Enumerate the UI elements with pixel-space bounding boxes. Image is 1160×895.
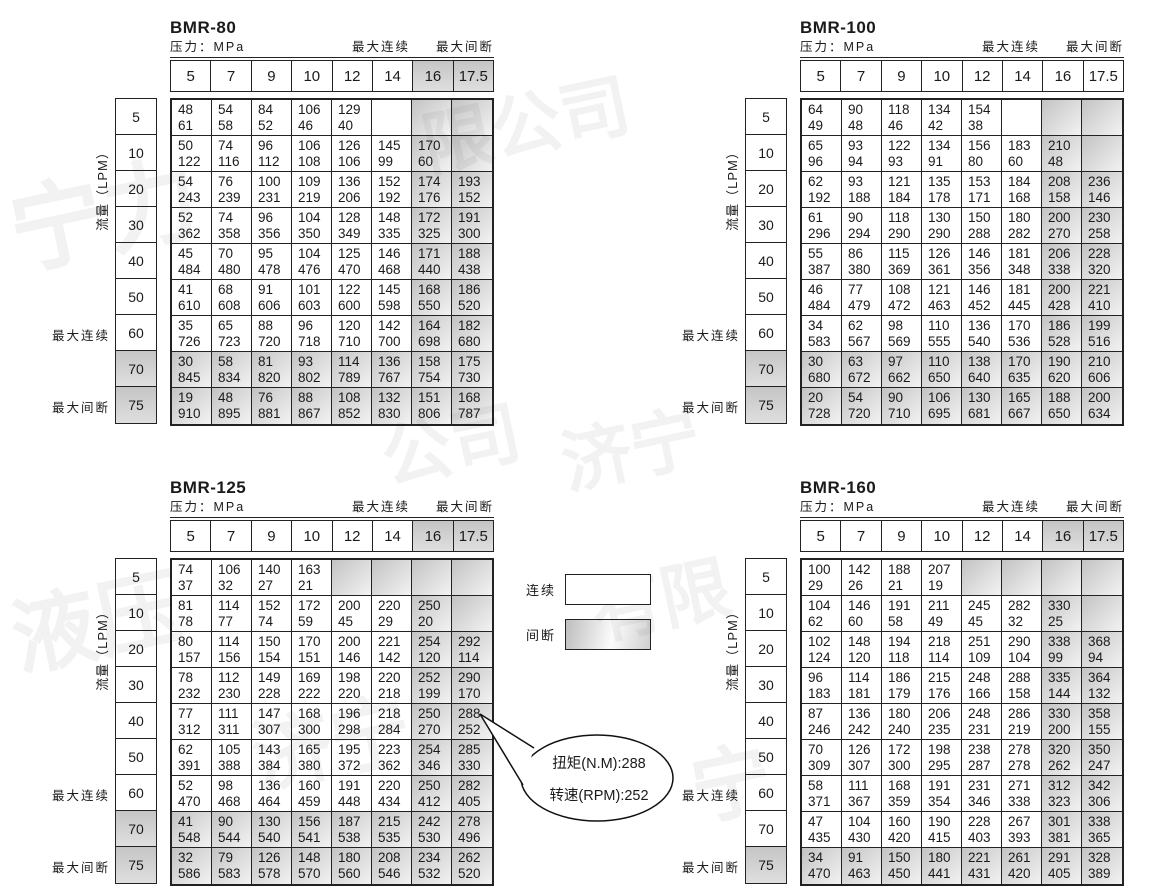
speed-value: 346 (418, 758, 451, 774)
data-cell: 136464 (252, 776, 292, 812)
data-cell (452, 136, 492, 172)
table-title: BMR-80 (170, 18, 236, 38)
data-cell: 182680 (452, 316, 492, 352)
data-cell: 76881 (252, 388, 292, 424)
speed-value: 60 (418, 154, 451, 170)
data-cell: 200270 (1042, 208, 1082, 244)
max-intermittent-row-label: 最大间断 (30, 397, 110, 416)
torque-value: 35 (178, 318, 211, 334)
data-cell: 151806 (412, 388, 452, 424)
data-cell: 130681 (962, 388, 1002, 424)
torque-value: 48 (178, 102, 211, 118)
data-cell: 98468 (212, 776, 252, 812)
data-cell: 102124 (802, 632, 842, 668)
speed-value: 371 (808, 794, 841, 810)
speed-value: 459 (298, 794, 331, 810)
speed-value: 307 (848, 758, 881, 774)
data-cell: 24545 (962, 596, 1002, 632)
speed-value: 472 (888, 298, 921, 314)
flow-axis-label: 流量（LPM） (722, 108, 738, 268)
speed-value: 806 (418, 406, 451, 422)
speed-value: 532 (418, 866, 451, 882)
speed-value: 192 (808, 190, 841, 206)
flow-header-cell: 50 (746, 279, 786, 315)
pressure-header-cell: 17.5 (1084, 521, 1123, 551)
speed-value: 49 (808, 118, 841, 134)
torque-value: 199 (1088, 318, 1122, 334)
flow-header-cell: 75 (116, 387, 156, 423)
header-label-row: 压力：MPa 最大连续 最大间断 (800, 500, 1124, 518)
speed-value: 296 (808, 226, 841, 242)
data-cell: 106695 (922, 388, 962, 424)
data-cell: 215176 (922, 668, 962, 704)
torque-value: 62 (808, 174, 841, 190)
speed-value: 80 (968, 154, 1001, 170)
torque-value: 98 (218, 778, 251, 794)
pressure-unit-label: 压力：MPa (170, 496, 245, 515)
torque-value: 220 (378, 670, 411, 686)
data-cell: 19158 (882, 596, 922, 632)
pressure-header-row: 5791012141617.5 (800, 60, 1124, 92)
data-cell (1082, 100, 1122, 136)
data-cell: 34470 (802, 848, 842, 884)
speed-value: 19 (928, 578, 961, 594)
data-cell: 33025 (1042, 596, 1082, 632)
data-cell: 122600 (332, 280, 372, 316)
table-bmr-125: 流量（LPM） 最大连续 最大间断 51020304050607075 BMR-… (30, 478, 494, 882)
torque-value: 136 (378, 354, 411, 370)
speed-value: 479 (848, 298, 881, 314)
torque-value: 134 (928, 138, 961, 154)
speed-value: 569 (888, 334, 921, 350)
speed-value: 246 (808, 722, 841, 738)
torque-value: 122 (888, 138, 921, 154)
speed-value: 867 (298, 406, 331, 422)
torque-value: 234 (418, 850, 451, 866)
flow-header-cell: 60 (116, 775, 156, 811)
data-cell: 68608 (212, 280, 252, 316)
torque-value: 125 (338, 246, 371, 262)
speed-value: 184 (888, 190, 921, 206)
torque-value: 45 (178, 246, 211, 262)
data-cell: 16321 (292, 560, 332, 596)
speed-value: 52 (258, 118, 291, 134)
speed-value: 335 (378, 226, 411, 242)
speed-value: 428 (1048, 298, 1081, 314)
data-cell (1082, 136, 1122, 172)
torque-value: 104 (298, 246, 331, 262)
data-cell: 52362 (172, 208, 212, 244)
speed-value: 228 (258, 686, 291, 702)
speed-value: 767 (378, 370, 411, 386)
speed-value: 49 (928, 614, 961, 630)
data-cell: 278278 (1002, 740, 1042, 776)
data-cell: 114789 (332, 352, 372, 388)
pressure-header-cell: 14 (373, 61, 413, 91)
speed-value: 496 (458, 830, 492, 846)
data-cell: 46484 (802, 280, 842, 316)
flow-header-cell: 70 (116, 351, 156, 387)
speed-value: 146 (1088, 190, 1122, 206)
data-cell: 136242 (842, 704, 882, 740)
pressure-header-cell: 5 (171, 61, 211, 91)
speed-value: 29 (378, 614, 411, 630)
torque-value: 290 (1008, 634, 1041, 650)
torque-value: 250 (418, 706, 451, 722)
speed-value: 391 (178, 758, 211, 774)
data-cell: 148335 (372, 208, 412, 244)
speed-value: 372 (338, 758, 371, 774)
torque-value: 68 (218, 282, 251, 298)
speed-value: 723 (218, 334, 251, 350)
torque-value: 278 (1008, 742, 1041, 758)
speed-value: 104 (1008, 650, 1041, 666)
speed-value: 325 (418, 226, 451, 242)
data-cell: 194118 (882, 632, 922, 668)
data-cell: 114181 (842, 668, 882, 704)
speed-value: 40 (338, 118, 371, 134)
flow-header-cell: 5 (116, 99, 156, 135)
speed-value: 361 (928, 262, 961, 278)
torque-value: 126 (848, 742, 881, 758)
data-cell: 250270 (412, 704, 452, 740)
data-cell: 136206 (332, 172, 372, 208)
data-cell: 143384 (252, 740, 292, 776)
torque-value: 221 (968, 850, 1001, 866)
data-cell: 254120 (412, 632, 452, 668)
speed-value: 710 (338, 334, 371, 350)
torque-value: 146 (848, 598, 881, 614)
data-cell: 10632 (212, 560, 252, 596)
flow-axis-label: 流量（LPM） (92, 108, 108, 268)
torque-value: 218 (928, 634, 961, 650)
data-cell: 191448 (332, 776, 372, 812)
speed-value: 188 (848, 190, 881, 206)
speed-value: 60 (1008, 154, 1041, 170)
speed-value: 287 (968, 758, 1001, 774)
speed-value: 154 (258, 650, 291, 666)
data-cell: 130540 (252, 812, 292, 848)
torque-value: 182 (458, 318, 492, 334)
data-cell: 54243 (172, 172, 212, 208)
speed-value: 650 (1048, 406, 1081, 422)
speed-value: 452 (968, 298, 1001, 314)
flow-column: 51020304050607075 (745, 558, 787, 884)
torque-value: 168 (418, 282, 451, 298)
pressure-header-cell: 16 (413, 61, 453, 91)
speed-value: 662 (888, 370, 921, 386)
speed-value: 156 (218, 650, 251, 666)
speed-value: 312 (178, 722, 211, 738)
speed-value: 48 (848, 118, 881, 134)
data-cell: 330200 (1042, 704, 1082, 740)
speed-value: 231 (258, 190, 291, 206)
max-continuous-row-label: 最大连续 (30, 325, 110, 344)
torque-value: 70 (808, 742, 841, 758)
speed-value: 288 (968, 226, 1001, 242)
pressure-header-cell: 14 (1003, 61, 1043, 91)
speed-value: 468 (218, 794, 251, 810)
pressure-header-cell: 5 (801, 521, 841, 551)
pressure-header-cell: 7 (841, 521, 881, 551)
torque-value: 64 (808, 102, 841, 118)
torque-value: 186 (1048, 318, 1081, 334)
data-cell: 186179 (882, 668, 922, 704)
torque-value: 142 (378, 318, 411, 334)
torque-value: 114 (218, 634, 251, 650)
torque-value: 41 (178, 282, 211, 298)
torque-value: 146 (378, 246, 411, 262)
data-cell: 112230 (212, 668, 252, 704)
speed-value: 672 (848, 370, 881, 386)
torque-value: 148 (298, 850, 331, 866)
flow-header-cell: 75 (746, 387, 786, 423)
torque-value: 170 (1008, 354, 1041, 370)
torque-value: 187 (338, 814, 371, 830)
speed-value: 309 (808, 758, 841, 774)
data-cell: 195372 (332, 740, 372, 776)
torque-value: 54 (848, 390, 881, 406)
data-cell: 79583 (212, 848, 252, 884)
speed-value: 548 (178, 830, 211, 846)
speed-value: 550 (418, 298, 451, 314)
speed-value: 538 (338, 830, 371, 846)
max-continuous-col-label: 最大连续 (352, 496, 410, 515)
speed-value: 640 (968, 370, 1001, 386)
header-label-row: 压力：MPa 最大连续 最大间断 (170, 500, 494, 518)
flow-header-cell: 30 (116, 667, 156, 703)
torque-value: 151 (418, 390, 451, 406)
speed-value: 412 (418, 794, 451, 810)
torque-value: 55 (808, 246, 841, 262)
data-cell: 125470 (332, 244, 372, 280)
torque-value: 158 (418, 354, 451, 370)
torque-value: 251 (968, 634, 1001, 650)
data-cell: 320262 (1042, 740, 1082, 776)
pressure-header-cell: 16 (1043, 521, 1083, 551)
pressure-header-cell: 10 (292, 61, 332, 91)
speed-value: 42 (928, 118, 961, 134)
torque-value: 74 (218, 210, 251, 226)
speed-value: 393 (1008, 830, 1041, 846)
speed-value: 586 (178, 866, 211, 882)
speed-value: 112 (258, 154, 291, 170)
data-cell: 186520 (452, 280, 492, 316)
torque-value: 114 (218, 598, 251, 614)
data-cell: 18821 (882, 560, 922, 596)
callout-speed-text: 转速(RPM):252 (524, 784, 674, 805)
data-cell: 165667 (1002, 388, 1042, 424)
data-cell: 230258 (1082, 208, 1122, 244)
torque-value: 77 (178, 706, 211, 722)
speed-value: 730 (458, 370, 492, 386)
speed-value: 306 (1088, 794, 1122, 810)
torque-value: 106 (218, 562, 251, 578)
data-cell: 196298 (332, 704, 372, 740)
speed-value: 583 (808, 334, 841, 350)
speed-value: 603 (298, 298, 331, 314)
torque-value: 206 (1048, 246, 1081, 262)
torque-value: 52 (178, 210, 211, 226)
pressure-header-cell: 9 (252, 521, 292, 551)
data-cell: 96356 (252, 208, 292, 244)
torque-value: 88 (298, 390, 331, 406)
max-continuous-col-label: 最大连续 (982, 36, 1040, 55)
data-cell: 105388 (212, 740, 252, 776)
data-cell: 61296 (802, 208, 842, 244)
data-cell: 148570 (292, 848, 332, 884)
data-cell: 158754 (412, 352, 452, 388)
torque-value: 34 (808, 850, 841, 866)
max-intermittent-col-label: 最大间断 (436, 36, 494, 55)
data-cell (412, 100, 452, 136)
speed-value: 728 (808, 406, 841, 422)
data-cell: 180441 (922, 848, 962, 884)
data-cell: 248231 (962, 704, 1002, 740)
flow-header-cell: 60 (746, 315, 786, 351)
speed-value: 171 (968, 190, 1001, 206)
torque-value: 152 (258, 598, 291, 614)
torque-value: 292 (458, 634, 492, 650)
data-cell: 171440 (412, 244, 452, 280)
data-cell: 10462 (802, 596, 842, 632)
speed-value: 146 (338, 650, 371, 666)
torque-value: 41 (178, 814, 211, 830)
flow-header-cell: 40 (116, 243, 156, 279)
pressure-header-cell: 10 (292, 521, 332, 551)
data-cell: 164698 (412, 316, 452, 352)
flow-header-cell: 10 (116, 595, 156, 631)
max-intermittent-col-label: 最大间断 (436, 496, 494, 515)
data-cell: 63672 (842, 352, 882, 388)
speed-value: 520 (458, 298, 492, 314)
data-cell: 20719 (922, 560, 962, 596)
data-cell: 115369 (882, 244, 922, 280)
data-cell: 36894 (1082, 632, 1122, 668)
torque-value: 150 (888, 850, 921, 866)
data-cell: 13491 (922, 136, 962, 172)
data-cell: 20045 (332, 596, 372, 632)
speed-value: 634 (1088, 406, 1122, 422)
speed-value: 242 (848, 722, 881, 738)
pressure-header-cell: 14 (373, 521, 413, 551)
data-cell: 169222 (292, 668, 332, 704)
speed-value: 32 (218, 578, 251, 594)
speed-value: 700 (378, 334, 411, 350)
torque-value: 242 (418, 814, 451, 830)
speed-value: 881 (258, 406, 291, 422)
torque-value: 220 (378, 598, 411, 614)
torque-value: 206 (928, 706, 961, 722)
torque-value: 62 (848, 318, 881, 334)
pressure-header-cell: 16 (1043, 61, 1083, 91)
speed-value: 219 (298, 190, 331, 206)
torque-value: 121 (888, 174, 921, 190)
speed-value: 555 (928, 334, 961, 350)
speed-value: 199 (418, 686, 451, 702)
speed-value: 99 (378, 154, 411, 170)
torque-value: 121 (928, 282, 961, 298)
torque-value: 77 (848, 282, 881, 298)
torque-value: 63 (848, 354, 881, 370)
data-cell: 342306 (1082, 776, 1122, 812)
speed-value: 441 (928, 866, 961, 882)
data-cell: 142700 (372, 316, 412, 352)
speed-value: 359 (888, 794, 921, 810)
torque-value: 74 (218, 138, 251, 154)
pressure-unit-label: 压力：MPa (170, 36, 245, 55)
data-cell: 91606 (252, 280, 292, 316)
speed-value: 21 (298, 578, 331, 594)
torque-value: 170 (418, 138, 451, 154)
speed-value: 21 (888, 578, 921, 594)
torque-value: 271 (1008, 778, 1041, 794)
data-cell: 184168 (1002, 172, 1042, 208)
data-cell: 11477 (212, 596, 252, 632)
data-cell: 90294 (842, 208, 882, 244)
data-grid: 4861545884521064612940501227411696112106… (170, 98, 494, 426)
data-cell: 33899 (1042, 632, 1082, 668)
data-cell: 168787 (452, 388, 492, 424)
torque-value: 96 (258, 210, 291, 226)
data-cell: 14226 (842, 560, 882, 596)
legend-continuous-label: 连续 (498, 580, 556, 599)
torque-value: 104 (298, 210, 331, 226)
torque-value: 261 (1008, 850, 1041, 866)
torque-value: 170 (298, 634, 331, 650)
speed-value: 114 (458, 650, 492, 666)
data-cell: 77312 (172, 704, 212, 740)
speed-value: 206 (338, 190, 371, 206)
speed-value: 541 (298, 830, 331, 846)
data-cell: 96183 (802, 668, 842, 704)
data-cell (452, 560, 492, 596)
flow-header-cell: 75 (116, 847, 156, 883)
flow-header-cell: 40 (116, 703, 156, 739)
speed-value: 243 (178, 190, 211, 206)
torque-value: 160 (888, 814, 921, 830)
header-label-row: 压力：MPa 最大连续 最大间断 (800, 40, 1124, 58)
data-cell: 90710 (882, 388, 922, 424)
torque-value: 76 (258, 390, 291, 406)
torque-value: 211 (928, 598, 961, 614)
data-cell: 17259 (292, 596, 332, 632)
speed-value: 120 (848, 650, 881, 666)
flow-header-cell: 50 (746, 739, 786, 775)
data-cell: 228320 (1082, 244, 1122, 280)
speed-value: 420 (888, 830, 921, 846)
data-cell: 4861 (172, 100, 212, 136)
torque-value: 328 (1088, 850, 1122, 866)
torque-value: 200 (1048, 210, 1081, 226)
data-cell: 188650 (1042, 388, 1082, 424)
speed-value: 157 (178, 650, 211, 666)
data-cell: 11846 (882, 100, 922, 136)
data-cell: 14599 (372, 136, 412, 172)
torque-value: 54 (178, 174, 211, 190)
torque-value: 106 (298, 138, 331, 154)
data-cell: 358155 (1082, 704, 1122, 740)
torque-value: 170 (1008, 318, 1041, 334)
data-cell: 100231 (252, 172, 292, 208)
data-cell: 126578 (252, 848, 292, 884)
speed-value: 62 (808, 614, 841, 630)
data-cell: 180560 (332, 848, 372, 884)
speed-value: 754 (418, 370, 451, 386)
speed-value: 232 (178, 686, 211, 702)
data-cell: 22029 (372, 596, 412, 632)
flow-header-cell: 20 (116, 171, 156, 207)
